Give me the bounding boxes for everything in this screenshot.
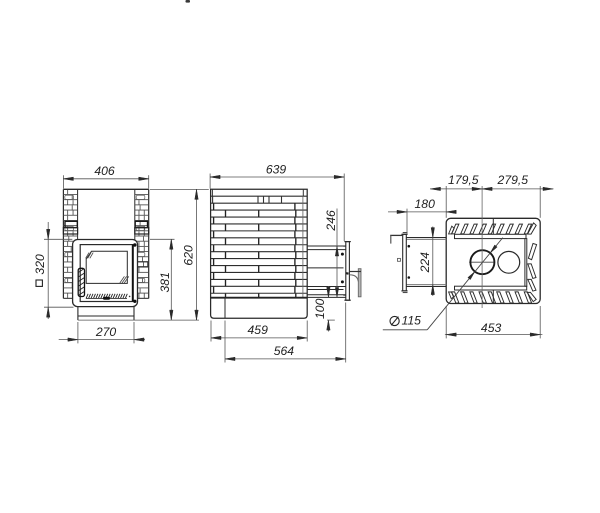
svg-text:320: 320 (33, 254, 47, 275)
svg-text:564: 564 (274, 344, 295, 358)
svg-text:246: 246 (324, 210, 338, 232)
svg-text:224: 224 (418, 252, 432, 274)
svg-text:180: 180 (415, 197, 436, 211)
svg-text:620: 620 (182, 245, 196, 266)
svg-text:406: 406 (94, 164, 115, 178)
svg-text:381: 381 (158, 272, 172, 292)
svg-text:100: 100 (313, 298, 327, 319)
svg-text:115: 115 (401, 314, 421, 328)
svg-text:179,5: 179,5 (448, 173, 479, 187)
svg-text:453: 453 (481, 321, 502, 335)
svg-text:639: 639 (266, 162, 287, 176)
svg-text:459: 459 (248, 323, 269, 337)
svg-text:279,5: 279,5 (497, 173, 529, 187)
svg-text:270: 270 (95, 325, 117, 339)
